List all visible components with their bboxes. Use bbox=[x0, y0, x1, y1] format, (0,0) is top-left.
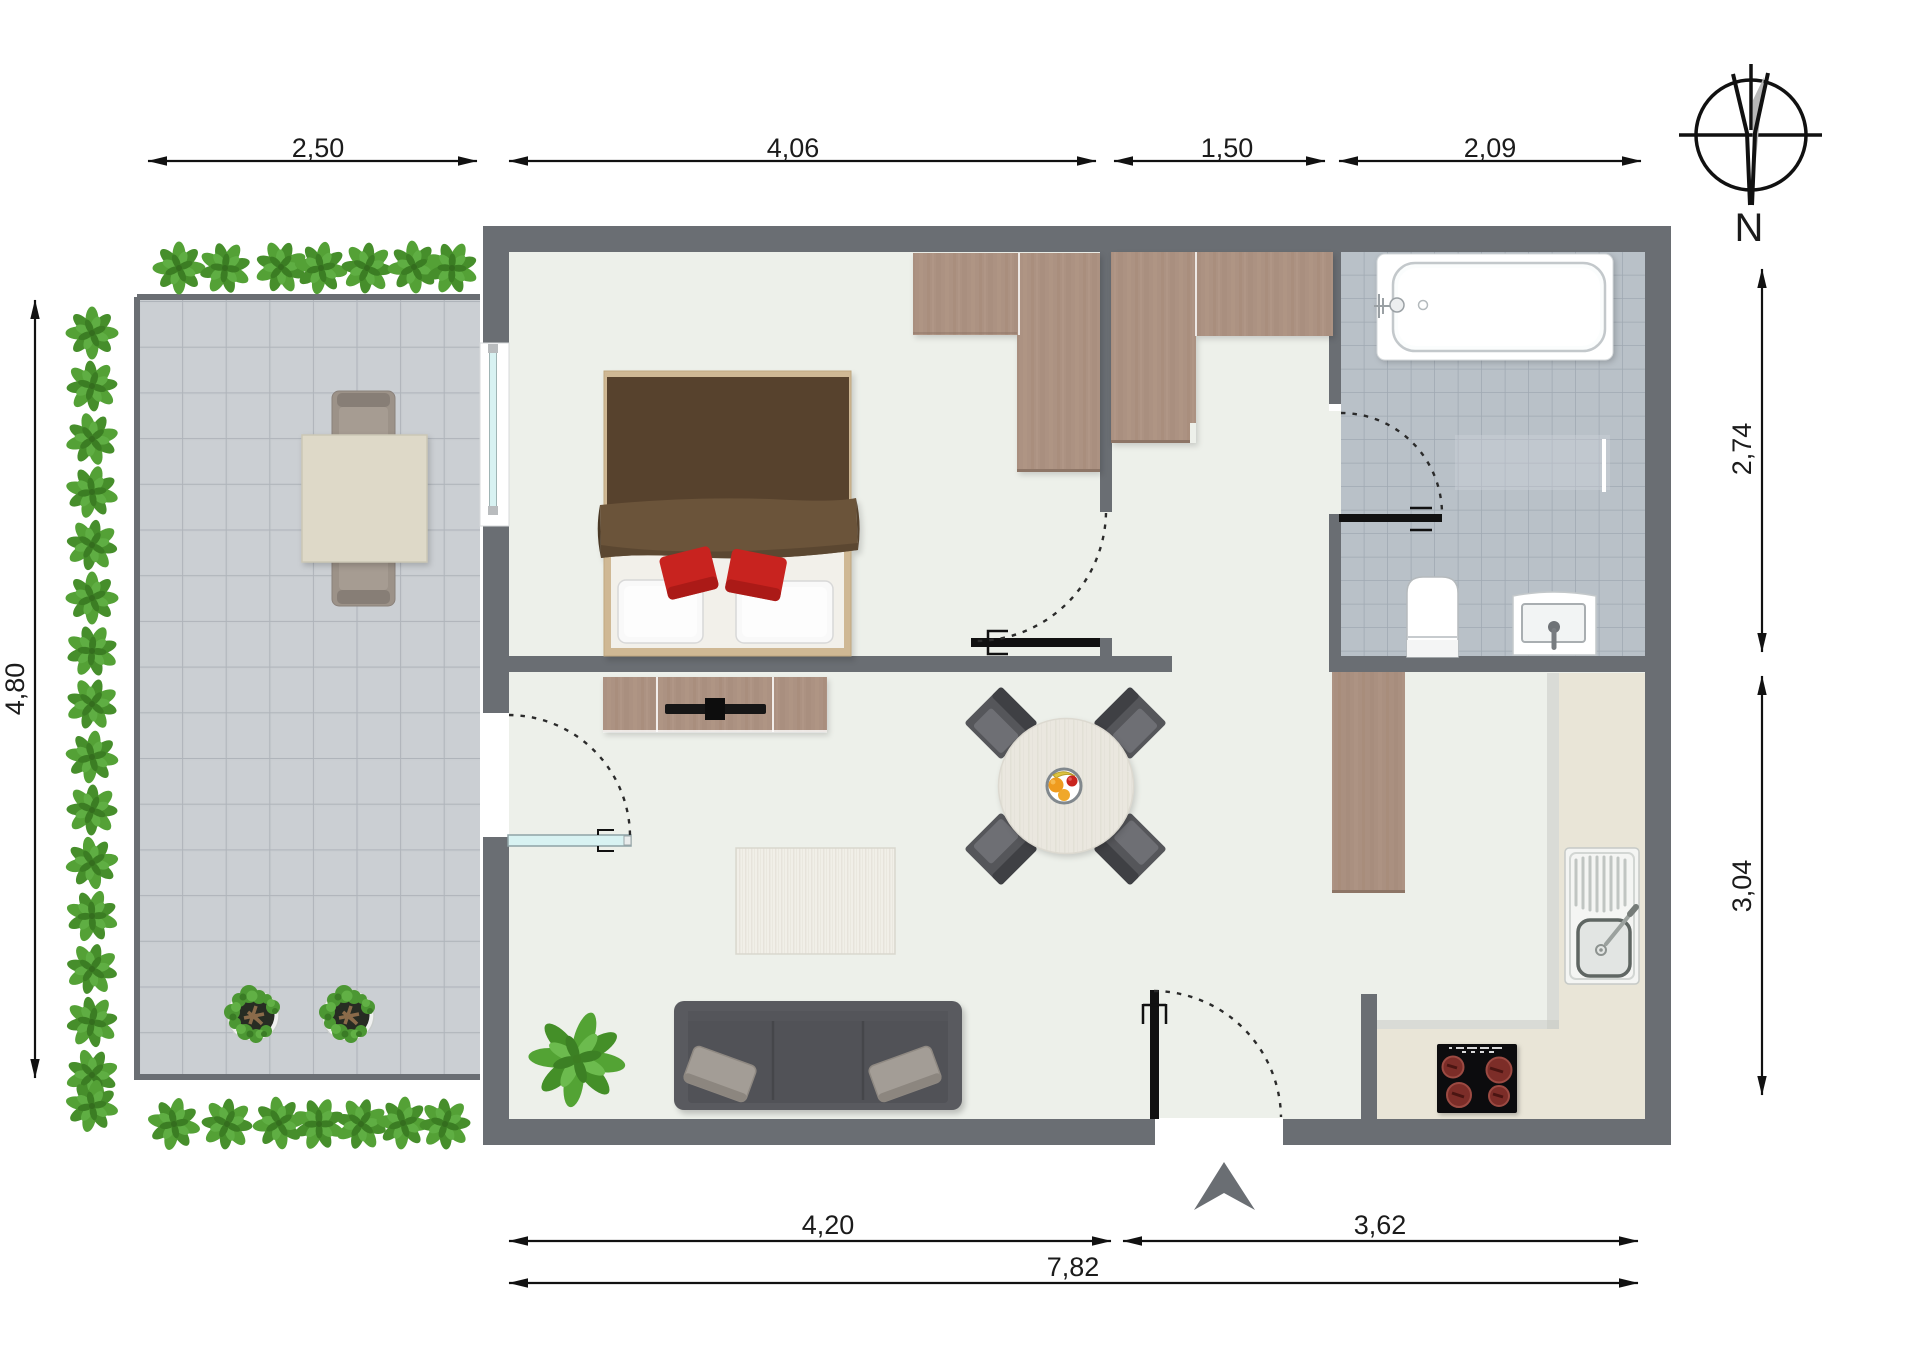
svg-text:2,09: 2,09 bbox=[1464, 133, 1517, 163]
svg-text:4,80: 4,80 bbox=[0, 663, 30, 716]
svg-text:3,62: 3,62 bbox=[1354, 1210, 1407, 1240]
svg-text:3,04: 3,04 bbox=[1727, 860, 1757, 913]
svg-text:2,74: 2,74 bbox=[1727, 423, 1757, 476]
svg-text:7,82: 7,82 bbox=[1047, 1252, 1100, 1282]
svg-text:N: N bbox=[1735, 206, 1764, 250]
svg-text:1,50: 1,50 bbox=[1201, 133, 1254, 163]
svg-text:2,50: 2,50 bbox=[292, 133, 345, 163]
svg-text:4,06: 4,06 bbox=[767, 133, 820, 163]
svg-text:4,20: 4,20 bbox=[802, 1210, 855, 1240]
